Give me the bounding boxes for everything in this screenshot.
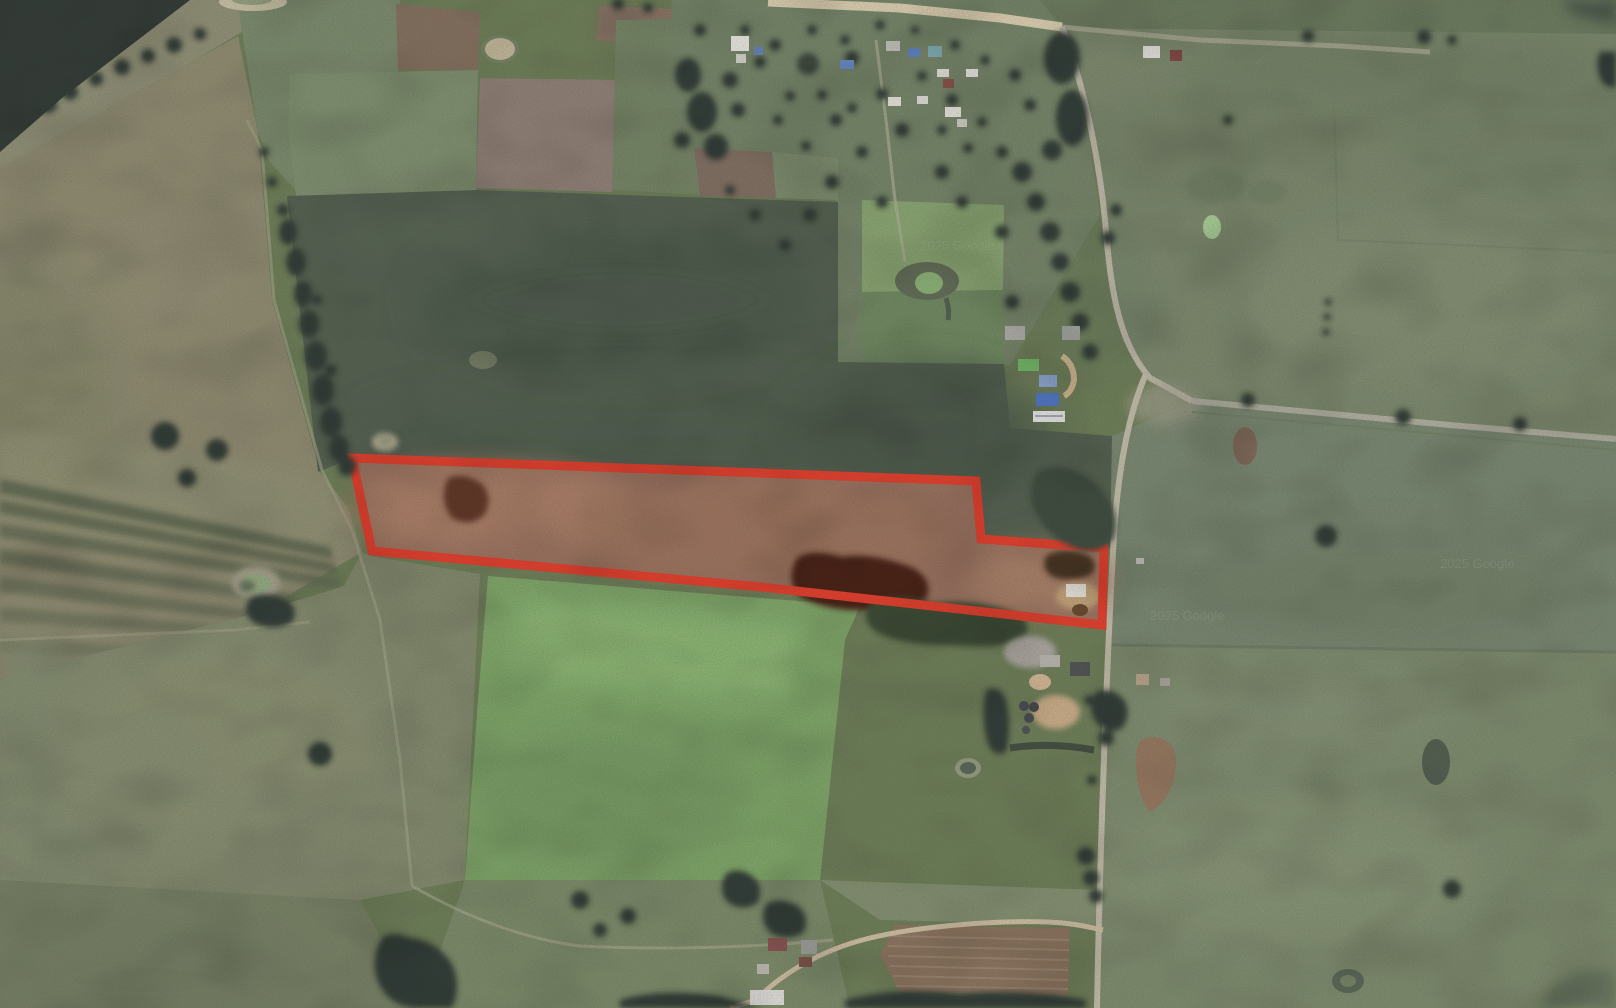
svg-text:2025 Google: 2025 Google	[920, 238, 994, 253]
svg-text:2025 Google: 2025 Google	[1150, 608, 1224, 623]
svg-text:2025 Google: 2025 Google	[1440, 556, 1514, 571]
